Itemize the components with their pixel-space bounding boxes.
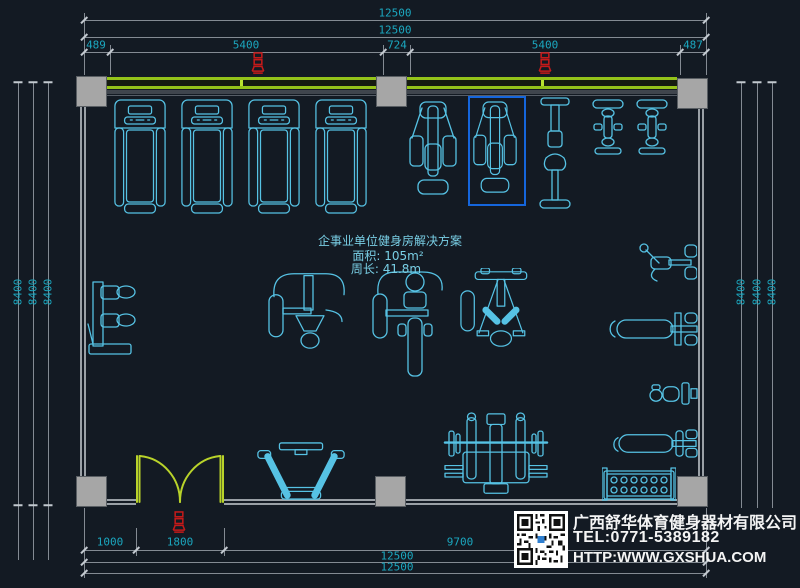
dim-label: 12500 (380, 561, 413, 574)
dim-label: 724 (387, 39, 407, 52)
dim-tick (737, 81, 746, 83)
treadmill-icon[interactable] (180, 98, 234, 216)
spin-bike-icon[interactable] (636, 98, 668, 156)
company-website: HTTP:WWW.GXSHUA.COM (573, 549, 766, 566)
dim-label: 12500 (378, 7, 411, 20)
wall-bottom (224, 503, 699, 505)
double-door[interactable] (134, 454, 226, 504)
dim-tick (29, 504, 38, 506)
dim-tick (753, 81, 762, 83)
dim-tick (29, 81, 38, 83)
window-center-mark (240, 80, 243, 86)
dim-line-top-1 (84, 20, 706, 21)
dim-tick (44, 81, 53, 83)
dumbbell-rack-icon[interactable] (602, 467, 676, 501)
wall-right (702, 95, 704, 501)
dim-ext (706, 13, 707, 75)
treadmill-icon[interactable] (247, 98, 301, 216)
dim-label: 8400 (42, 279, 55, 306)
wall-dual-station-icon[interactable] (85, 278, 137, 358)
window-tag-icon (251, 52, 265, 75)
dim-tick (14, 504, 23, 506)
dim-label: 1800 (167, 536, 194, 549)
dim-ext (84, 13, 85, 75)
flat-bench-icon[interactable] (606, 429, 698, 458)
dim-label: 9700 (447, 536, 474, 549)
dim-ext (224, 528, 225, 556)
dim-label: 12500 (378, 24, 411, 37)
dim-line-left (18, 82, 19, 560)
dim-label: 5400 (233, 39, 260, 52)
hack-squat-machine-icon[interactable] (252, 441, 350, 501)
dim-label: 8400 (735, 279, 748, 306)
lat-pulldown-machine-icon[interactable] (372, 264, 448, 386)
dim-tick (14, 81, 23, 83)
column (375, 476, 406, 507)
dim-label: 8400 (766, 279, 779, 306)
curl-station-icon[interactable] (637, 241, 697, 283)
pec-fly-machine-icon[interactable] (460, 268, 540, 350)
dim-tick (44, 504, 53, 506)
company-tel: TEL:0771-5389182 (573, 529, 720, 547)
column (677, 78, 708, 109)
window-center-mark (541, 80, 544, 86)
door-tag-icon (172, 511, 186, 534)
treadmill-icon[interactable] (113, 98, 167, 216)
treadmill-icon[interactable] (314, 98, 368, 216)
wall-right (698, 95, 700, 501)
dim-label: 487 (683, 39, 703, 52)
dim-line-top-3 (84, 52, 706, 53)
dim-label: 8400 (12, 279, 25, 306)
dim-line-left (33, 82, 34, 560)
bench-press-rack-icon[interactable] (443, 412, 549, 500)
dim-label: 5400 (532, 39, 559, 52)
dim-label: 1000 (97, 536, 124, 549)
dim-ext (136, 528, 137, 556)
upright-bike-icon[interactable] (538, 96, 572, 212)
shoulder-press-machine-icon[interactable] (268, 268, 352, 352)
elliptical-selected-icon[interactable] (472, 100, 518, 198)
elliptical-icon[interactable] (408, 100, 458, 200)
window-tag-icon (538, 52, 552, 75)
dim-ext (84, 508, 85, 578)
spin-bike-icon[interactable] (592, 98, 624, 156)
column (76, 476, 107, 507)
plan-perimeter: 周长: 41.8m (351, 260, 421, 277)
qr-code (514, 511, 568, 568)
column (677, 476, 708, 507)
dim-tick (768, 81, 777, 83)
floor-plan-canvas: 12500 12500 489 5400 724 5400 487 1000 1… (0, 0, 800, 588)
dim-label: 489 (86, 39, 106, 52)
press-bench-icon[interactable] (605, 311, 699, 347)
dim-line-left (48, 82, 49, 560)
dim-label: 8400 (751, 279, 764, 306)
seated-unit-icon[interactable] (648, 381, 698, 406)
column (376, 76, 407, 107)
dim-label: 8400 (27, 279, 40, 306)
wall-left (80, 95, 82, 501)
column (76, 76, 107, 107)
